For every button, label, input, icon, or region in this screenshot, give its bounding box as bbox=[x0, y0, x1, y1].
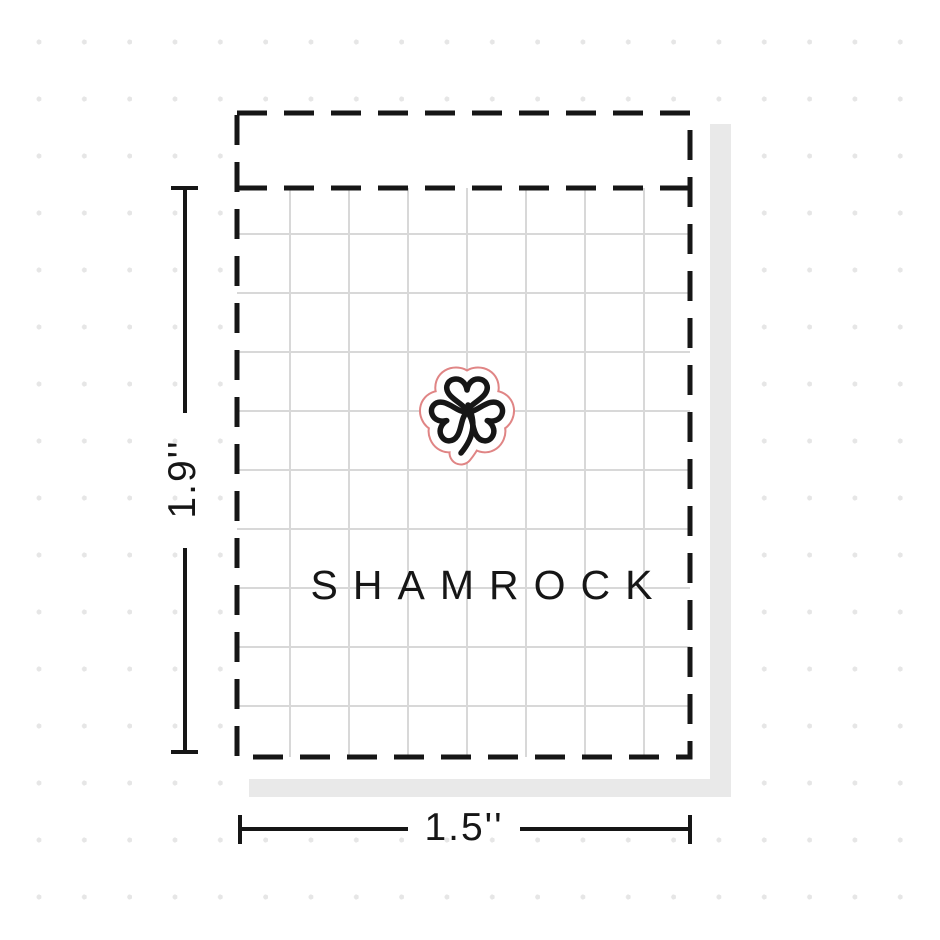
shamrock-icon bbox=[415, 358, 519, 466]
width-dimension-right-cap bbox=[688, 815, 692, 844]
height-dimension-line-upper bbox=[183, 188, 187, 413]
height-dimension-label: 1.9'' bbox=[160, 409, 206, 549]
height-dimension-line-lower bbox=[183, 548, 187, 754]
sticker-title: SHAMROCK bbox=[244, 562, 719, 609]
dotted-background-canvas: SHAMROCK 1.9'' 1.5'' bbox=[0, 0, 940, 940]
height-dimension-bottom-cap bbox=[171, 750, 198, 754]
width-dimension-line-right bbox=[520, 827, 690, 831]
